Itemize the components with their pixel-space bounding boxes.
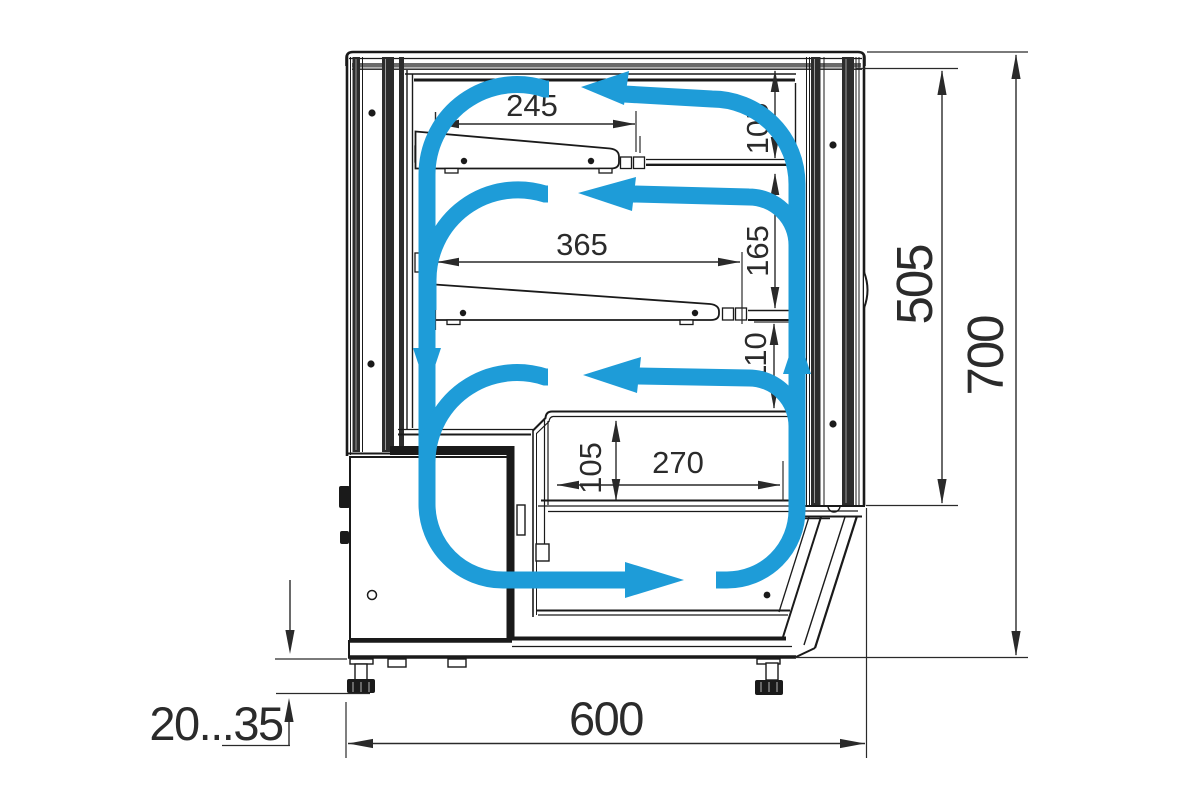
- svg-text:700: 700: [957, 316, 1014, 396]
- svg-text:600: 600: [569, 692, 643, 745]
- svg-text:505: 505: [886, 245, 943, 325]
- svg-text:165: 165: [740, 225, 775, 277]
- svg-text:365: 365: [556, 227, 608, 262]
- svg-text:20...35: 20...35: [149, 697, 283, 750]
- svg-text:270: 270: [652, 445, 704, 480]
